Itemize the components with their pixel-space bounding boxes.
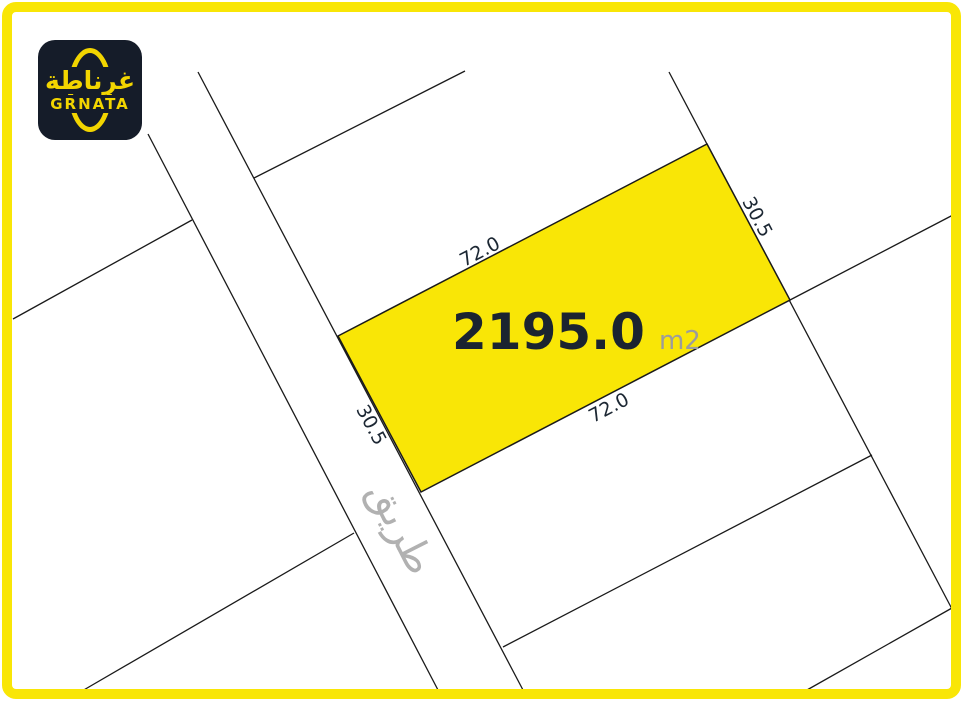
boundary-line-west — [13, 220, 192, 319]
parcel-area-value: 2195.0 — [452, 303, 645, 361]
logo-latin-text: GRNATA — [47, 95, 133, 113]
parcel-area-unit: m2 — [659, 326, 701, 356]
logo-arabic-text: غرناطة — [41, 67, 139, 95]
plot-map-canvas: 72.0 30.5 72.0 30.5 2195.0m2 طريق غرناطة… — [0, 0, 963, 701]
boundary-line-south-neighbor — [503, 455, 872, 647]
road-name-label: طريق — [358, 474, 444, 583]
boundary-line-north — [254, 71, 465, 178]
boundary-line-southwest — [82, 533, 354, 691]
grnata-logo: غرناطة GRNATA — [38, 40, 142, 140]
cadastral-map: 72.0 30.5 72.0 30.5 2195.0m2 طريق — [0, 0, 963, 701]
boundary-line-east — [790, 215, 953, 300]
boundary-line-southeast — [807, 608, 952, 690]
